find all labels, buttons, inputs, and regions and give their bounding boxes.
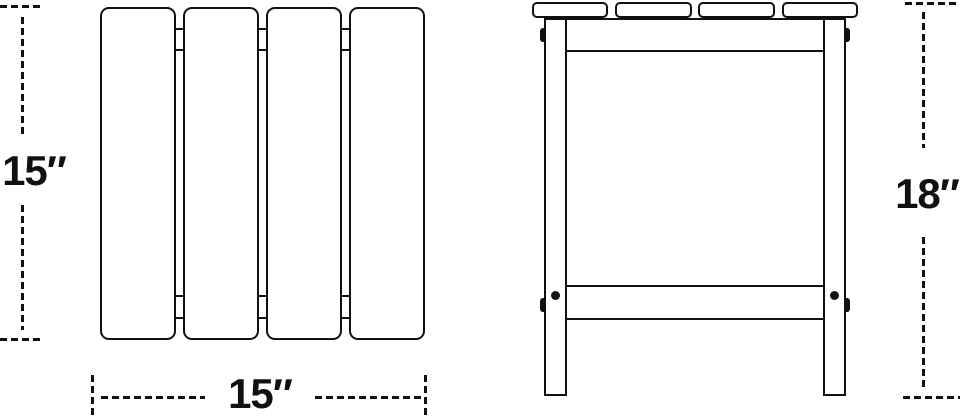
width-dim-tick-left [91,375,94,418]
top-view-slat [349,7,425,340]
height-dim-tick-bottom [903,396,960,399]
top-view-slat [266,7,342,340]
height-dim-label: 18″ [885,172,960,216]
top-view-slat [183,7,259,340]
front-view-slat [698,2,775,18]
depth-dim-tick-bottom [0,338,44,341]
height-dim-line-lower [922,237,925,390]
depth-dim-label: 15″ [0,149,68,193]
width-dim-line-right [315,396,423,399]
dimension-diagram: 15″ 15″ 18″ [0,0,960,419]
screw-dot [551,291,560,300]
width-dim-label: 15″ [218,372,302,416]
height-dim-line-upper [922,12,925,148]
table-top-view [0,0,480,419]
front-view-right-leg [823,18,846,396]
width-dim-line-left [101,396,205,399]
depth-dim-line-lower [21,205,24,330]
depth-dim-line-upper [21,17,24,135]
width-dim-tick-right [424,375,427,418]
depth-dim-tick-top [0,5,42,8]
front-view-stretcher [565,285,825,320]
screw-dot [830,291,839,300]
front-view-left-leg [544,18,567,396]
top-view-slat [100,7,176,340]
front-view-slat [615,2,692,18]
front-view-slat [782,2,858,18]
height-dim-tick-top [905,2,960,5]
front-view-slat [532,2,608,18]
front-view-apron [565,18,825,52]
